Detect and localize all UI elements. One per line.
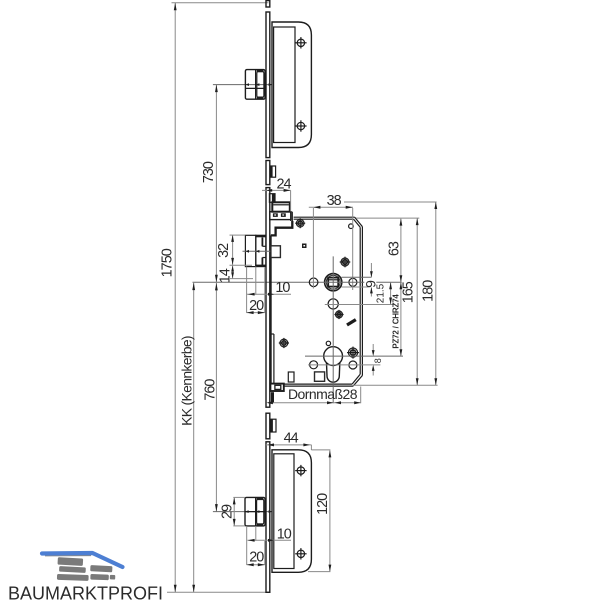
svg-text:63: 63 bbox=[387, 241, 403, 256]
svg-text:24: 24 bbox=[276, 177, 291, 193]
svg-text:44: 44 bbox=[284, 430, 299, 446]
svg-text:1750: 1750 bbox=[159, 248, 175, 277]
svg-text:14: 14 bbox=[217, 268, 233, 283]
svg-text:29: 29 bbox=[220, 504, 236, 519]
svg-text:20: 20 bbox=[249, 550, 264, 566]
svg-text:KK (Kennkerbe): KK (Kennkerbe) bbox=[178, 336, 194, 426]
svg-text:760: 760 bbox=[203, 379, 219, 401]
svg-text:21.5: 21.5 bbox=[375, 283, 386, 303]
svg-text:PZ72 / CHRZ74: PZ72 / CHRZ74 bbox=[391, 294, 400, 349]
svg-text:120: 120 bbox=[315, 493, 331, 515]
svg-text:165: 165 bbox=[400, 281, 416, 303]
svg-text:38: 38 bbox=[327, 193, 342, 209]
svg-text:Dornmaß28: Dornmaß28 bbox=[288, 386, 358, 402]
svg-text:20: 20 bbox=[249, 298, 264, 314]
svg-text:32: 32 bbox=[216, 243, 232, 258]
svg-text:730: 730 bbox=[201, 161, 217, 183]
svg-text:10: 10 bbox=[277, 526, 292, 542]
svg-text:180: 180 bbox=[421, 280, 437, 302]
svg-text:BAUMARKTPROFI: BAUMARKTPROFI bbox=[8, 584, 163, 600]
svg-text:8: 8 bbox=[373, 358, 383, 363]
svg-text:10: 10 bbox=[275, 280, 290, 296]
